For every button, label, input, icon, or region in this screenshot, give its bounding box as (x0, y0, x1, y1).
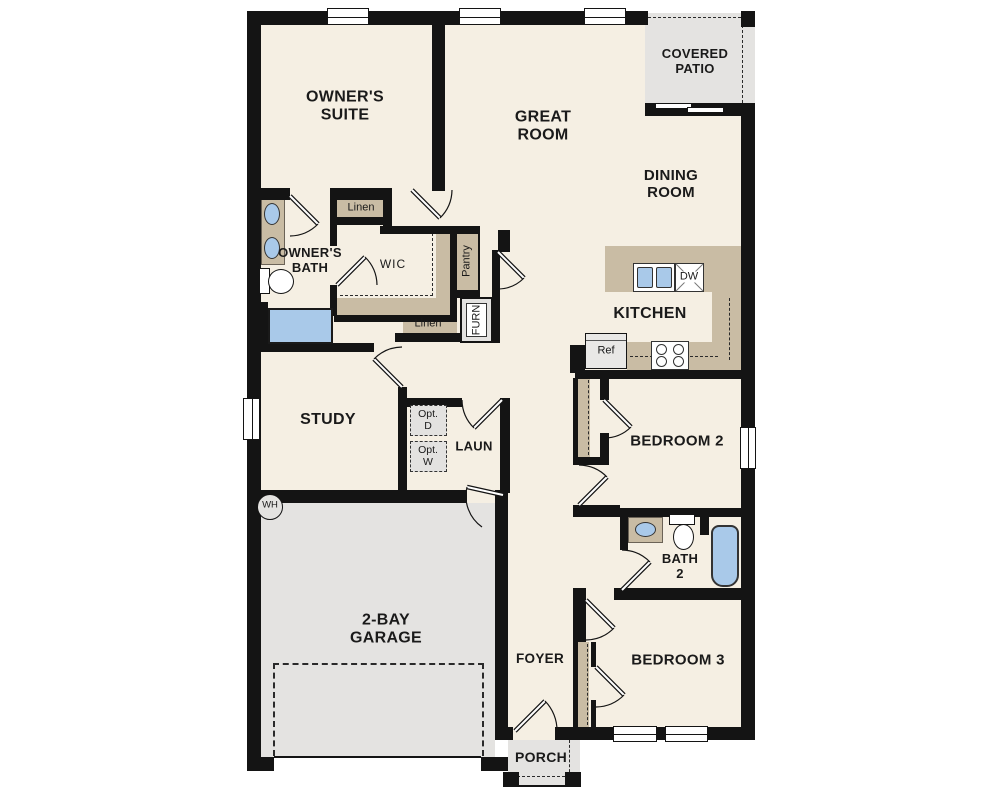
bath2-toilet-bowl (673, 524, 694, 550)
wall-bed2-bottom (573, 505, 620, 517)
owners-shower (268, 308, 333, 344)
patio-slider-panel-b (687, 107, 724, 113)
owners-bath-sink-1 (264, 203, 280, 225)
garage-opening-line (274, 756, 481, 758)
wall-bed2-closet-jamb-a (600, 375, 609, 400)
bath2-sink (635, 522, 656, 537)
upper-cabinet-dash-right (729, 298, 730, 360)
room-label-bedroom3: BEDROOM 3 (608, 651, 748, 668)
entry-opening (513, 727, 555, 740)
bedroom2-closet-dash (588, 380, 589, 455)
wall-hall-stub-top (498, 230, 510, 252)
wall-bed3-closet-jamb-b (591, 700, 596, 727)
window-greatroom-top-2 (584, 8, 626, 25)
window-bedroom3-a (613, 726, 657, 742)
wall-bed2-closet-bottom (573, 457, 609, 465)
room-label-porch: PORCH (506, 749, 576, 765)
window-bedroom3-b (665, 726, 708, 742)
wall-garage-corner-right (481, 757, 508, 771)
stove-burner-2 (673, 344, 684, 355)
label-linen-top: Linen (331, 202, 391, 215)
label-opt-dryer: Opt. D (414, 408, 442, 432)
porch-edge-line (508, 785, 581, 787)
wall-bath2-bottom (614, 588, 741, 600)
wall-pantry-top (380, 226, 480, 234)
label-furnace: FURN (471, 305, 484, 336)
wall-bath2-tub-stub (700, 513, 709, 535)
room-label-covered-patio: COVERED PATIO (653, 47, 738, 77)
pantry-door-line (478, 234, 480, 290)
patio-corner-post (741, 11, 755, 27)
wall-left (247, 11, 261, 771)
label-linen-bottom: Linen (398, 318, 458, 331)
room-label-bedroom2: BEDROOM 2 (607, 432, 747, 449)
kitchen-sink-basin-2 (656, 267, 672, 288)
bath2-tub (711, 525, 739, 587)
wall-bed3-closet-jamb-a (591, 642, 596, 667)
room-label-dining-room: DINING ROOM (629, 167, 714, 202)
wic-shelf-right (436, 230, 450, 315)
wall-suite-right (432, 25, 445, 191)
wall-shower-corner (247, 302, 268, 348)
refrigerator-line (586, 340, 626, 341)
bedroom3-closet-dash (587, 644, 588, 725)
label-pantry: Pantry (461, 245, 474, 277)
room-label-wic: WIC (363, 258, 423, 272)
wall-right (741, 103, 755, 740)
room-label-owners-bath: OWNER'S BATH (273, 246, 348, 276)
wall-hall-bed2-thin (573, 378, 578, 457)
wall-study-top (258, 343, 374, 352)
label-opt-washer: Opt. W (414, 444, 442, 468)
label-dishwasher: DW (680, 272, 698, 283)
wall-bed3-top-left (573, 588, 586, 642)
patio-dash-right (742, 25, 743, 103)
stove-burner-4 (673, 356, 684, 367)
wall-wic-right (450, 230, 457, 315)
window-greatroom-top-1 (459, 8, 501, 25)
window-suite-top (327, 8, 369, 25)
wall-furn-right (492, 250, 500, 343)
window-study-left (243, 398, 260, 440)
room-label-foyer: FOYER (505, 651, 575, 667)
room-label-study: STUDY (283, 411, 373, 429)
room-label-laundry: LAUN (446, 440, 502, 455)
room-label-great-room: GREAT ROOM (498, 109, 588, 146)
patio-dash-top (648, 17, 741, 18)
wall-kitchen-stub (570, 345, 585, 373)
room-label-garage: 2-BAY GARAGE (339, 612, 434, 649)
wall-garage-corner-left (247, 757, 274, 771)
room-label-kitchen: KITCHEN (590, 305, 710, 323)
wall-suite-bottom-a (261, 188, 290, 200)
label-water-heater: WH (262, 501, 278, 512)
kitchen-sink-basin-1 (637, 267, 653, 288)
room-label-owners-suite: OWNER'S SUITE (285, 89, 405, 126)
wall-wic-top (330, 217, 387, 225)
garage-door-dash (273, 663, 484, 756)
stove-burner-3 (656, 356, 667, 367)
room-label-bath2: BATH 2 (657, 552, 703, 582)
wall-bath2-left-a (620, 513, 628, 550)
wall-garage-foyer (495, 490, 508, 740)
stove-burner-1 (656, 344, 667, 355)
floor-plan: OWNER'S SUITE GREAT ROOM COVERED PATIO D… (0, 0, 1000, 800)
label-refrigerator: Ref (586, 345, 626, 358)
wic-shelf-bottom (337, 298, 436, 315)
wall-suite-bottom-b (330, 188, 390, 200)
